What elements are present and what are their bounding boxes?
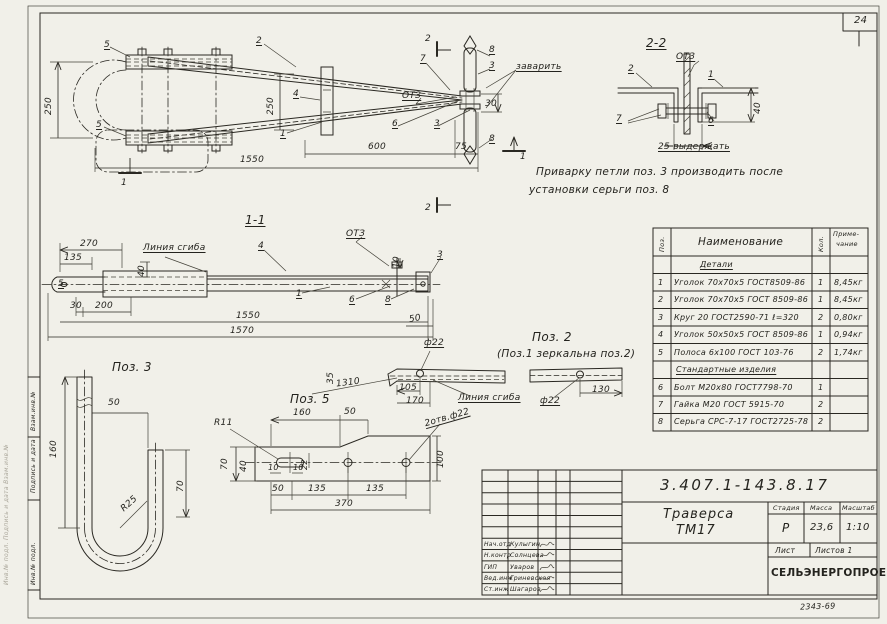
sign-role: Н.контр xyxy=(484,552,511,559)
spec-row-name: Серьга СРС-7-17 ГОСТ2725-78 xyxy=(674,417,808,426)
pos5-dim-40: 40 xyxy=(239,460,249,472)
margin-edge-text: Инв.№ подл. Подпись и дата Взам.инв.№ xyxy=(3,444,10,585)
spec-row-pos: 1 xyxy=(658,278,663,287)
scale-label: Масштаб xyxy=(842,504,875,512)
pos5-title: Поз. 5 xyxy=(290,392,330,406)
pos3-dim-160: 160 xyxy=(49,440,59,458)
spec-header-qty: Кол. xyxy=(817,236,825,252)
spec-row-qty: 1 xyxy=(818,278,823,287)
s11-dim-10: 10 xyxy=(392,256,402,268)
sign-name: Уваров xyxy=(510,564,534,571)
mass-label: Масса xyxy=(810,504,832,512)
signature-scribble xyxy=(539,540,555,549)
plan-callout-8a: 8 xyxy=(489,45,495,55)
sheets-label: Листов 1 xyxy=(815,546,853,555)
plan-callout-5b: 5 xyxy=(96,120,102,130)
spec-row-qty: 2 xyxy=(818,400,823,409)
plan-dim-75: 75 xyxy=(455,142,467,152)
s11-dim-270: 270 xyxy=(80,239,98,249)
plan-weld-note: заварить xyxy=(516,62,562,72)
stage-value: Р xyxy=(782,521,790,535)
s11-dim-40: 40 xyxy=(137,265,147,277)
s22-callout-2: 2 xyxy=(628,64,634,74)
spec-row-pos: 2 xyxy=(658,295,663,304)
spec-row-qty: 2 xyxy=(818,348,823,357)
spec-row-note: 0,94кг xyxy=(834,330,863,339)
pos5-radius-r11: R11 xyxy=(214,418,233,428)
plan-dim-250-left: 250 xyxy=(44,97,54,115)
pos2-dim-130: 130 xyxy=(592,385,610,395)
s11-callout-4: 4 xyxy=(258,241,264,251)
signature-scribble xyxy=(539,585,555,594)
s11-callout-1: 1 xyxy=(296,289,302,299)
drawing-linework xyxy=(0,0,887,624)
spec-section-details: Детали xyxy=(700,260,733,269)
plan-callout-3b: 3 xyxy=(434,119,440,129)
spec-row-name: Болт М20х80 ГОСТ7798-70 xyxy=(674,383,793,392)
spec-row-pos: 3 xyxy=(658,313,663,322)
plan-dim-600: 600 xyxy=(368,142,386,152)
s11-callout-5: 5 xyxy=(58,279,64,289)
plan-dim-1550: 1550 xyxy=(240,155,264,165)
spec-row-pos: 5 xyxy=(658,348,663,357)
pos5-dim-50-top: 50 xyxy=(344,407,356,417)
pos5-dim-70: 70 xyxy=(220,458,230,470)
pos5-dim-370: 370 xyxy=(335,499,353,509)
spec-row-pos: 7 xyxy=(658,400,663,409)
spec-section-standard: Стандартные изделия xyxy=(676,365,776,374)
pos2-dim-35: 35 xyxy=(326,372,336,384)
plan-section1-marker-right: 1 xyxy=(520,152,526,162)
s11-dim-135: 135 xyxy=(64,253,82,263)
s11-dim-1550: 1550 xyxy=(236,311,260,321)
pos5-dim-100: 100 xyxy=(436,450,446,468)
spec-row-name: Круг 20 ГОСТ2590-71 ℓ=320 xyxy=(674,313,799,322)
plan-section1-marker-left: 1 xyxy=(121,178,127,188)
plan-section2-marker-bottom: 2 xyxy=(425,203,431,213)
pos2-dia22-b: ф22 xyxy=(540,396,560,406)
spec-header-note1: Приме- xyxy=(833,230,859,238)
drawing-sheet: 5 2 2 7 8 3 заварить 250 250 4 ОТЗ 30 5 … xyxy=(0,0,887,624)
sign-role: Нач.отд xyxy=(484,541,511,548)
s22-callout-6: 6 xyxy=(708,116,714,126)
sign-role: Вед.инж xyxy=(484,575,513,582)
spec-row-qty: 2 xyxy=(818,417,823,426)
spec-row-qty: 1 xyxy=(818,295,823,304)
plan-callout-7: 7 xyxy=(420,54,426,64)
s11-callout-8: 8 xyxy=(385,295,391,305)
pos5-dim-10a: 10 xyxy=(268,463,279,472)
spec-row-name: Гайка М20 ГОСТ 5915-70 xyxy=(674,400,784,409)
pos3-dim-50: 50 xyxy=(108,398,120,408)
pos3-dim-70: 70 xyxy=(176,480,186,492)
s22-dim-40: 40 xyxy=(753,102,763,114)
spec-header-name: Наименование xyxy=(698,236,783,248)
pos5-dim-135a: 135 xyxy=(308,484,326,494)
pos5-dim-160: 160 xyxy=(293,408,311,418)
doc-number: 3.407.1-143.8.17 xyxy=(660,476,829,494)
pos2-bend-line-label: Линия сгиба xyxy=(458,393,521,403)
spec-row-pos: 4 xyxy=(658,330,663,339)
spec-row-name: Уголок 70х70х5 ГОСТ 8509-86 xyxy=(674,295,808,304)
spec-row-pos: 8 xyxy=(658,417,663,426)
plan-callout-8b: 8 xyxy=(489,134,495,144)
margin-stamp-cell-mid: Подпись и дата xyxy=(30,439,37,493)
pos3-detail-lines xyxy=(58,370,190,571)
s22-callout-7: 7 xyxy=(616,114,622,124)
plan-callout-2: 2 xyxy=(256,36,262,46)
organization-name: СЕЛЬЭНЕРГОПРОЕКТ xyxy=(771,567,887,579)
section-1-1-title: 1-1 xyxy=(245,213,266,227)
spec-row-qty: 1 xyxy=(818,330,823,339)
sign-role: ГИП xyxy=(484,564,497,571)
signature-scribble xyxy=(539,563,555,572)
margin-stamp-cell-top: Взам.инв.№ xyxy=(30,391,37,431)
s11-dim-50: 50 xyxy=(408,313,422,325)
s11-dim-30: 30 xyxy=(70,301,82,311)
pos2-subtitle: (Поз.1 зеркальна поз.2) xyxy=(497,348,635,360)
welding-note-line1: Приварку петли поз. 3 производить после xyxy=(536,166,783,178)
plan-callout-3a: 3 xyxy=(489,61,495,71)
pos5-dim-50-bot: 50 xyxy=(272,484,284,494)
spec-row-name: Уголок 50х50х5 ГОСТ 8509-86 xyxy=(674,330,808,339)
s11-dim-200: 200 xyxy=(95,301,113,311)
plan-callout-5a: 5 xyxy=(104,40,110,50)
spec-row-note: 1,74кг xyxy=(834,348,863,357)
margin-stamp-cell-bottom: Инв.№ подл. xyxy=(30,542,37,585)
s11-callout-3: 3 xyxy=(437,250,443,260)
spec-row-note: 8,45кг xyxy=(834,278,863,287)
product-name-line2: ТМ17 xyxy=(676,523,716,538)
s11-bend-line-label: Линия сгиба xyxy=(143,243,206,253)
plan-callout-6: 6 xyxy=(392,119,398,129)
spec-row-note: 0,80кг xyxy=(834,313,863,322)
spec-row-name: Полоса 6х100 ГОСТ 103-76 xyxy=(674,348,794,357)
spec-row-name: Уголок 70х70х5 ГОСТ8509-86 xyxy=(674,278,805,287)
spec-row-qty: 2 xyxy=(818,313,823,322)
section-2-2-title: 2-2 xyxy=(646,36,667,50)
product-name-line1: Траверса xyxy=(663,507,734,522)
s22-weld-otz: ОТЗ xyxy=(676,52,695,62)
pos2-dim-170: 170 xyxy=(406,396,424,406)
plan-dim-250-mid: 250 xyxy=(266,97,276,115)
pos5-dim-22: 22 xyxy=(300,459,309,470)
plan-dim-30: 30 xyxy=(485,99,497,109)
pos2-title: Поз. 2 xyxy=(532,330,572,344)
spec-row-note: 8,45кг xyxy=(834,295,863,304)
s22-note-25: 25 выдержать xyxy=(658,142,730,152)
plan-callout-1: 1 xyxy=(280,129,286,139)
signature-scribble xyxy=(539,551,555,560)
spec-row-pos: 6 xyxy=(658,383,663,392)
welding-note-line2: установки серьги поз. 8 xyxy=(529,184,669,196)
s22-callout-1: 1 xyxy=(708,70,714,80)
s11-weld-otz: ОТЗ xyxy=(346,229,365,239)
stage-label: Стадия xyxy=(773,504,800,512)
mass-value: 23,6 xyxy=(810,522,833,533)
scale-value: 1:10 xyxy=(846,522,870,533)
spec-row-qty: 1 xyxy=(818,383,823,392)
sign-name: Кулыгин xyxy=(510,541,540,548)
plan-weld-otz: ОТЗ xyxy=(402,91,421,101)
s11-dim-1570: 1570 xyxy=(230,326,254,336)
pos5-dim-135b: 135 xyxy=(366,484,384,494)
s11-callout-6: 6 xyxy=(349,295,355,305)
sign-role: Ст.инж xyxy=(484,586,509,593)
sign-name: Шагаров xyxy=(510,586,541,593)
pos3-title: Поз. 3 xyxy=(112,360,152,374)
sheet-number: 24 xyxy=(854,15,867,26)
pos2-dim-105: 105 xyxy=(399,383,417,393)
section-2-2-lines xyxy=(618,54,758,150)
signature-scribble xyxy=(539,574,555,583)
spec-header-pos: Поз. xyxy=(658,236,666,252)
archive-number: 2343-69 xyxy=(800,601,836,611)
spec-header-note2: чание xyxy=(836,240,858,248)
plan-callout-4: 4 xyxy=(293,89,299,99)
pos2-dia22-a: ф22 xyxy=(424,338,444,348)
sheet-label: Лист xyxy=(775,546,795,555)
plan-section2-marker-top: 2 xyxy=(425,34,431,44)
